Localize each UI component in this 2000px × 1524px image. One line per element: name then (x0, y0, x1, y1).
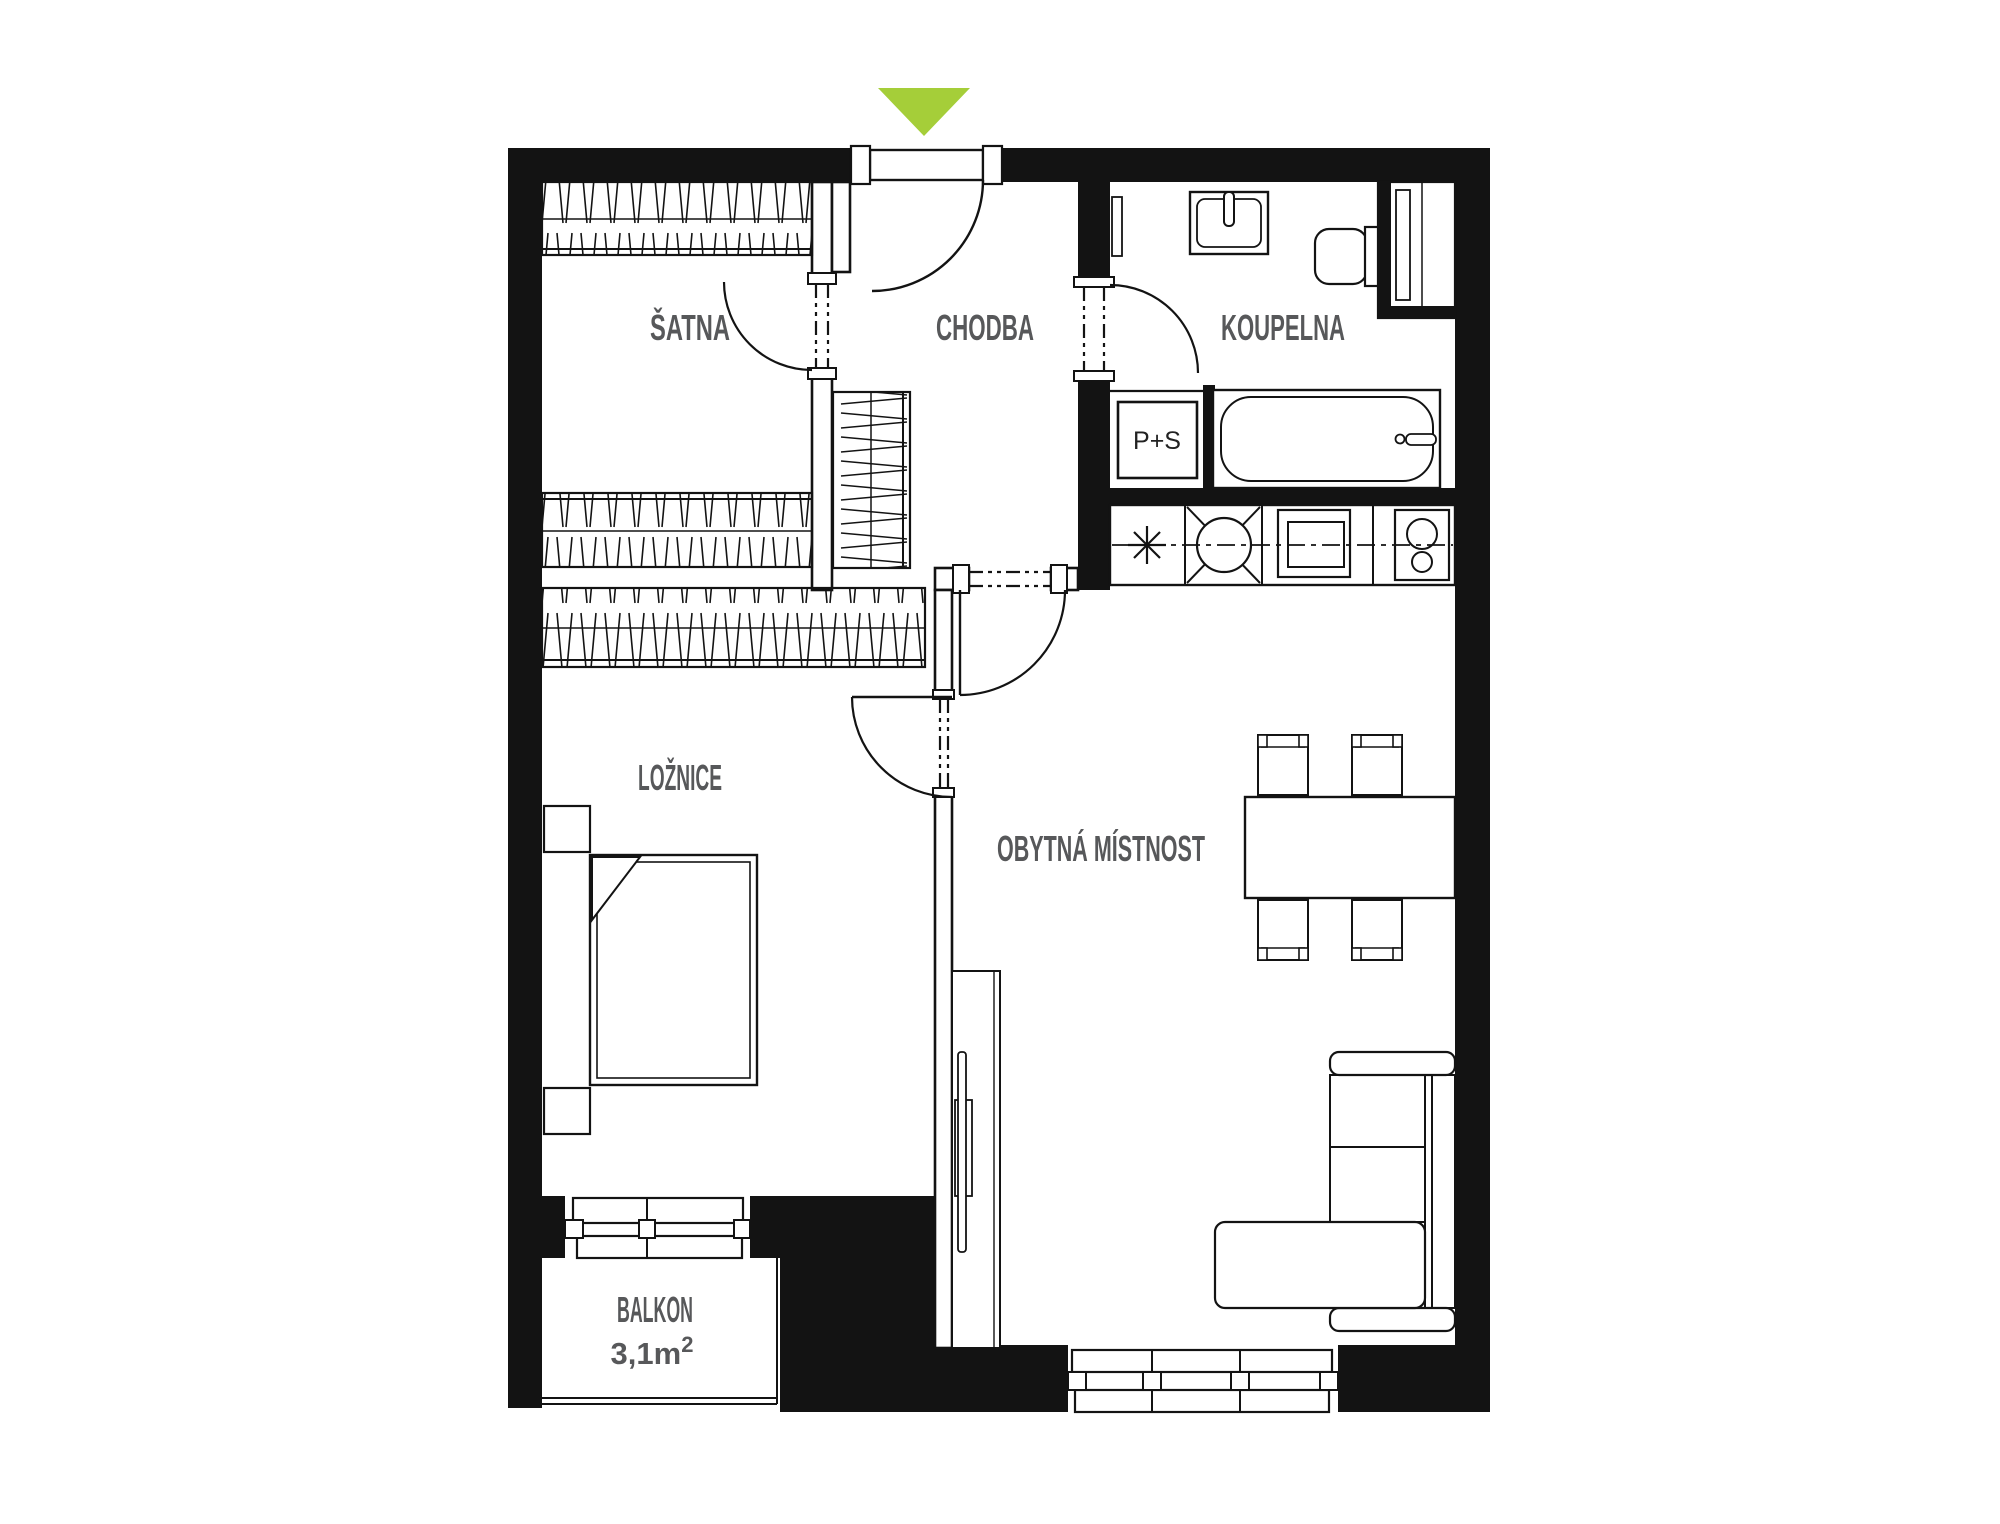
chair (1352, 900, 1402, 960)
living-door-swing-arc (960, 590, 1065, 695)
bottom-wall-left (780, 1345, 1068, 1412)
room-label-loznice: LOŽNICE (638, 756, 722, 798)
dining-table (1245, 797, 1455, 898)
satna-wardrobe-bottom (542, 493, 812, 567)
room-label-koupelna: KOUPELNA (1221, 307, 1345, 348)
tv-unit (952, 971, 1000, 1348)
satna-wall-pocket (832, 182, 850, 272)
satna-door-jamb-top (808, 273, 836, 284)
washer-dryer-label: P+S (1133, 427, 1181, 455)
washbasin-faucet (1224, 192, 1234, 226)
floor-plan: P+S (0, 0, 2000, 1524)
balcony-door-window (565, 1196, 750, 1258)
chair (1352, 735, 1402, 795)
bottom-wall-right (1338, 1345, 1455, 1412)
bedroom-door (852, 690, 955, 797)
hallway-closet (833, 392, 910, 568)
bedroom-partition-upper (935, 590, 952, 697)
installation-shaft (1378, 182, 1455, 318)
toilet-bowl (1315, 229, 1367, 284)
shaft-duct (1396, 190, 1410, 300)
bathroom-door-swing-arc (1110, 285, 1198, 373)
satna-door-jamb-bottom (808, 368, 836, 379)
entrance-door-leaf (870, 150, 983, 180)
bedroom-partition-lower (935, 790, 952, 1348)
sofa-armrest-top (1330, 1052, 1455, 1075)
bathroom-door-jamb-top (1074, 277, 1114, 287)
kitchen-wall (1110, 488, 1455, 505)
entrance-door-jamb-left (851, 146, 870, 184)
top-wall-right (1000, 148, 1490, 182)
living-room-window (1068, 1348, 1338, 1412)
room-label-satna: ŠATNA (650, 306, 730, 348)
entrance-door-swing-arc (872, 180, 983, 291)
satna-door-swing-arc (724, 282, 812, 370)
tv-screen (958, 1052, 966, 1252)
balcony-area-label: 3,1m2 (611, 1332, 694, 1371)
wardrobes (542, 182, 925, 667)
toilet (1315, 227, 1379, 286)
bathroom-wall-upper (1078, 182, 1110, 277)
left-wall (508, 148, 542, 1408)
floor-plan-page: P+S (0, 0, 2000, 1524)
washbasin (1190, 192, 1268, 254)
sofa-chaise (1215, 1222, 1425, 1308)
kitchen-counter (1110, 505, 1455, 585)
dining-set (1245, 735, 1455, 960)
bathroom-door (1074, 277, 1198, 381)
entrance-door-jamb-right (983, 146, 1002, 184)
chair (1258, 900, 1308, 960)
chair (1258, 735, 1308, 795)
sofa-armrest-bottom (1330, 1308, 1455, 1331)
bathtub-faucet (1406, 434, 1436, 445)
oven (1278, 510, 1350, 577)
entrance-arrow-icon (878, 88, 970, 136)
sofa (1215, 1052, 1455, 1331)
bed (590, 855, 757, 1085)
bathtub (1213, 390, 1440, 488)
bathroom-door-jamb-bottom (1074, 371, 1114, 381)
living-door-jamb-right (1051, 565, 1067, 593)
room-label-balkon: BALKON (617, 1289, 693, 1330)
room-label-chodba: CHODBA (936, 307, 1034, 348)
room-label-obytna: OBYTNÁ MÍSTNOST (997, 828, 1205, 869)
top-wall-left (508, 148, 853, 182)
bathtub-drain (1396, 435, 1405, 444)
bathroom-radiator (1112, 197, 1122, 256)
bedroom-wardrobe (542, 588, 925, 667)
entrance-door (851, 146, 1002, 291)
balcony-wall-right-stub (750, 1196, 780, 1258)
satna-wall-lower (812, 377, 832, 590)
satna-door (724, 273, 836, 379)
right-wall (1455, 148, 1490, 1412)
satna-wardrobe-top (542, 182, 812, 255)
living-door-jamb-left (953, 565, 969, 593)
balcony-wall-left-stub (542, 1196, 565, 1258)
living-room-furniture (1215, 735, 1455, 1331)
satna-wall-upper (812, 182, 832, 275)
nightstand-top (544, 806, 590, 852)
bathroom-wall-lower (1078, 381, 1110, 590)
nightstand-bottom (544, 1088, 590, 1134)
washer-dryer-closet: P+S (1110, 391, 1203, 478)
